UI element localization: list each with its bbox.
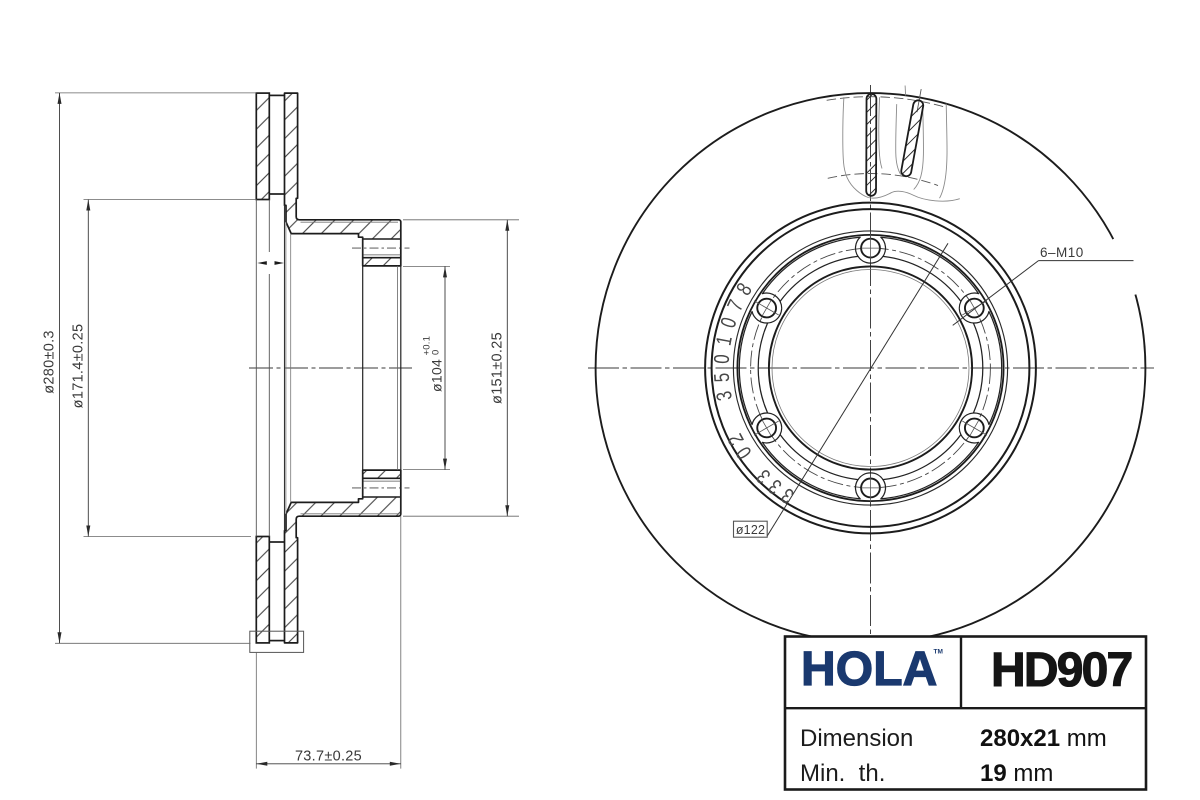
svg-text:0: 0: [431, 350, 442, 355]
svg-text:5: 5: [711, 372, 735, 383]
svg-text:0: 0: [711, 354, 735, 365]
svg-text:TM: TM: [934, 649, 943, 656]
svg-text:19 mm: 19 mm: [980, 760, 1053, 787]
svg-text:ø104: ø104: [429, 359, 445, 392]
svg-text:ø280±0.3: ø280±0.3: [42, 330, 58, 394]
svg-text:HD907: HD907: [991, 644, 1132, 697]
svg-text:ø122: ø122: [736, 523, 765, 537]
svg-text:ø171.4±0.25: ø171.4±0.25: [70, 324, 86, 409]
svg-text:HOLA: HOLA: [801, 643, 937, 696]
svg-text:6–M10: 6–M10: [1040, 245, 1084, 260]
svg-text:Min. th.: Min. th.: [800, 760, 885, 787]
svg-text:73.7±0.25: 73.7±0.25: [295, 749, 362, 765]
svg-text:ø151±0.25: ø151±0.25: [489, 332, 505, 404]
svg-text:Dimension: Dimension: [800, 725, 913, 752]
svg-text:280x21 mm: 280x21 mm: [980, 725, 1107, 752]
